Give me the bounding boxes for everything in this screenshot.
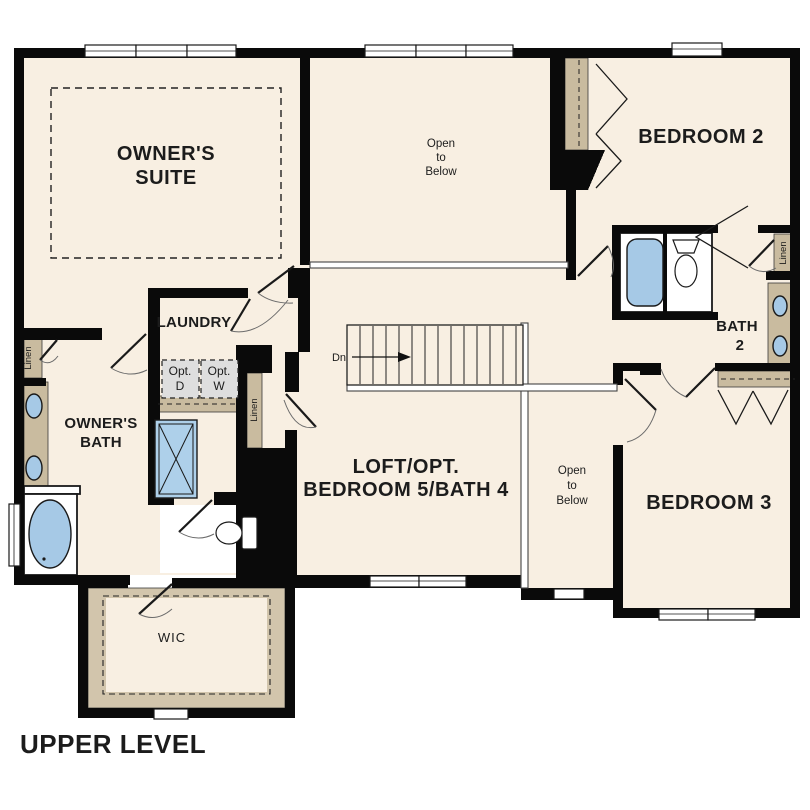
loft-label: LOFT/OPT. [353, 456, 460, 478]
optional-dryer-label: Opt. [169, 364, 192, 378]
staircase: Dn [332, 325, 523, 385]
linen-label: Linen [778, 241, 789, 264]
sink-fixture [773, 336, 787, 356]
open-below-railing-upper [310, 262, 568, 268]
wic-label: WIC [158, 630, 186, 645]
shower-fixture [155, 420, 197, 498]
sink-fixture [26, 394, 42, 418]
open-below-upper-label: Below [425, 166, 457, 178]
sink-fixture [773, 296, 787, 316]
optional-washer-label: Opt. [208, 364, 231, 378]
optional-dryer-label: D [176, 379, 185, 393]
open-below-upper-label: Open [427, 138, 455, 150]
owners-bath-label: OWNER'S [64, 415, 137, 432]
open-below-upper-label: to [436, 152, 446, 164]
plan-title: UPPER LEVEL [20, 729, 206, 759]
bedroom2-closet [565, 58, 588, 150]
bath2-label: BATH [716, 318, 758, 335]
bathtub-fixture [29, 500, 71, 568]
owners-suite-label: SUITE [135, 167, 196, 189]
loft-label: BEDROOM 5/BATH 4 [303, 479, 509, 501]
bathtub-fixture [627, 239, 663, 306]
owners-bath-label: BATH [80, 434, 122, 451]
laundry-label: LAUNDRY [157, 314, 232, 331]
bath2-label: 2 [736, 337, 745, 354]
floor-plan-drawing: Dn [0, 0, 810, 810]
linen-label: Linen [23, 346, 34, 369]
stairs-down-label: Dn [332, 352, 346, 364]
open-below-center-label: to [567, 480, 577, 492]
open-below-center-label: Open [558, 465, 586, 477]
sink-fixture [26, 456, 42, 480]
owners-suite-label: OWNER'S [117, 143, 215, 165]
floor-plan-page: Dn [0, 0, 810, 810]
tub-drain [42, 557, 45, 560]
tub-deck [24, 486, 80, 494]
toilet-fixture [673, 240, 699, 287]
bedroom3-label: BEDROOM 3 [646, 492, 772, 514]
bedroom2-label: BEDROOM 2 [638, 126, 764, 148]
open-below-center-label: Below [556, 495, 588, 507]
linen-label: Linen [249, 398, 260, 421]
optional-washer-label: W [213, 379, 225, 393]
